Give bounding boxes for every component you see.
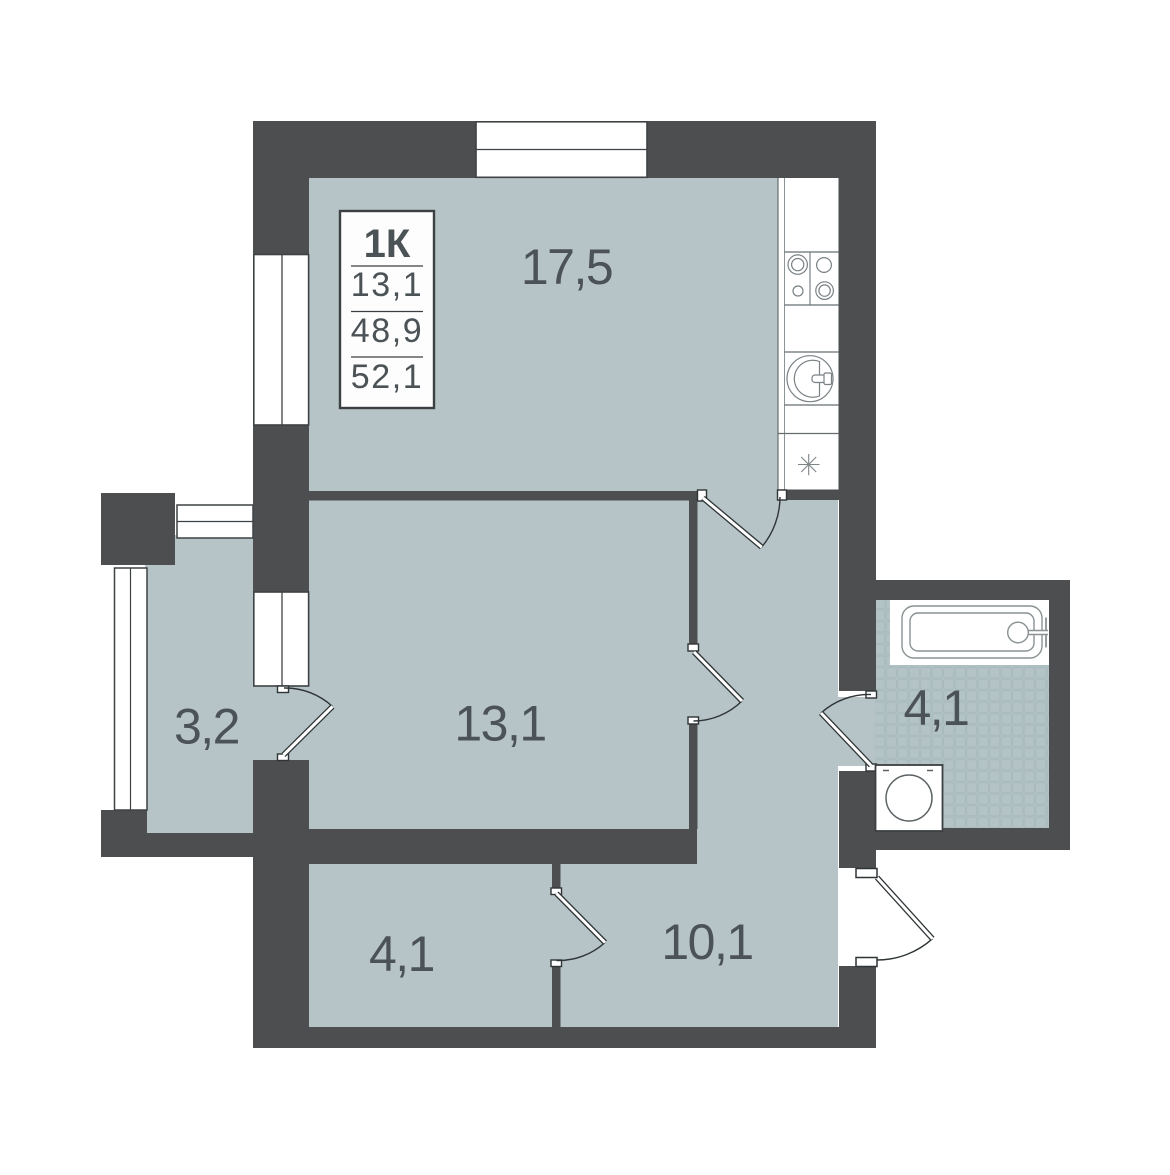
- svg-text:48,9: 48,9: [351, 312, 424, 350]
- svg-text:3,2: 3,2: [174, 699, 239, 755]
- svg-text:13,1: 13,1: [454, 696, 545, 752]
- svg-text:1К: 1К: [364, 222, 411, 266]
- svg-text:10,1: 10,1: [661, 914, 752, 970]
- svg-text:52,1: 52,1: [351, 358, 424, 396]
- svg-text:4,1: 4,1: [903, 680, 968, 736]
- svg-text:4,1: 4,1: [369, 926, 434, 982]
- svg-text:13,1: 13,1: [351, 266, 424, 304]
- svg-text:17,5: 17,5: [521, 239, 612, 295]
